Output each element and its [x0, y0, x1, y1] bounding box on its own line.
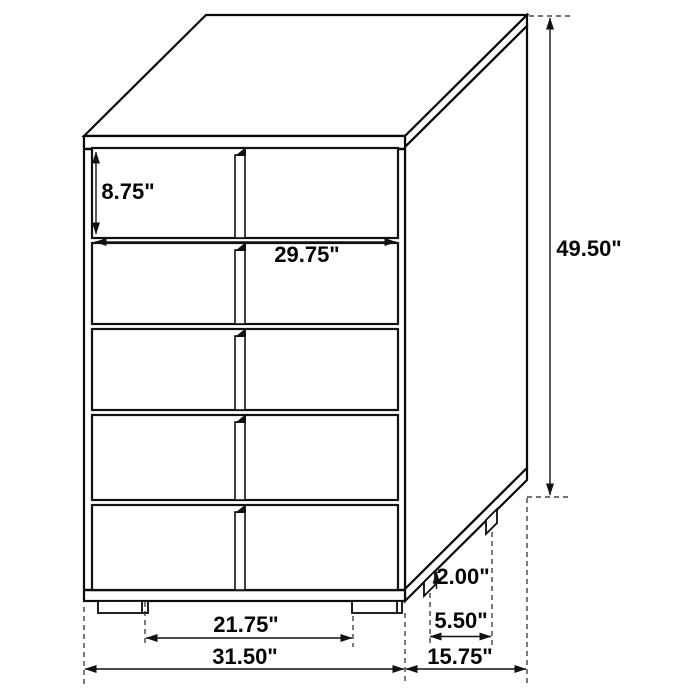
- label-overall-depth: 15.75": [427, 644, 492, 669]
- label-leg-height: 2.00": [436, 564, 489, 589]
- drawer-3-handle: [235, 336, 245, 410]
- label-overall-height: 49.50": [556, 236, 621, 261]
- label-drawer-width: 29.75": [274, 242, 339, 267]
- drawer-2-handle: [235, 250, 245, 324]
- chest-outline: [84, 15, 527, 613]
- drawer-5-handle: [235, 512, 245, 590]
- front-leg-right: [352, 601, 402, 613]
- chest-dimension-drawing: 8.75" 29.75" 49.50" 2.00" 5.50" 21.75" 3…: [0, 0, 700, 700]
- dimension-diagram: 8.75" 29.75" 49.50" 2.00" 5.50" 21.75" 3…: [0, 0, 700, 700]
- label-overall-width: 31.50": [212, 644, 277, 669]
- label-drawer-height: 8.75": [101, 179, 154, 204]
- label-front-leg-spacing: 21.75": [213, 612, 278, 637]
- front-leg-left: [98, 601, 148, 613]
- drawer-1-handle: [235, 155, 245, 238]
- drawer-4-handle: [235, 422, 245, 500]
- label-side-leg-spacing: 5.50": [434, 608, 487, 633]
